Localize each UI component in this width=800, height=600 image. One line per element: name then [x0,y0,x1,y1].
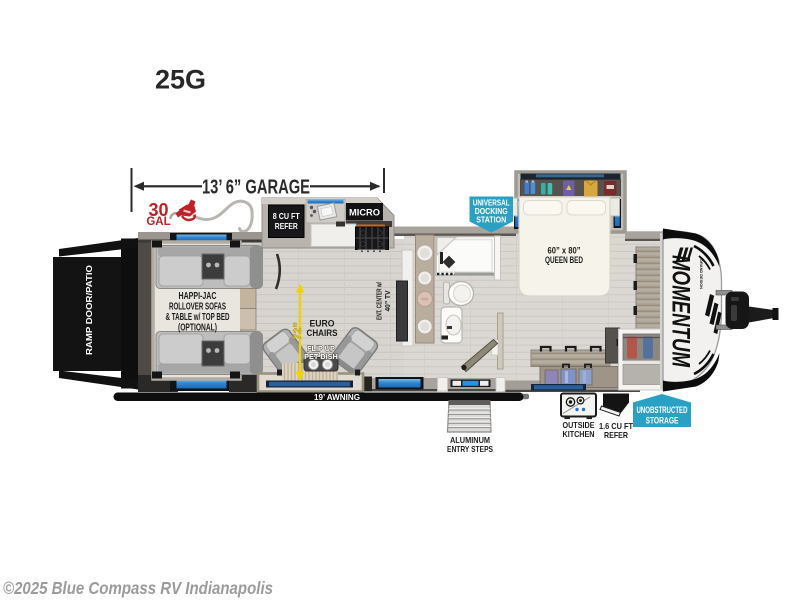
svg-text:25G: 25G [155,65,206,95]
svg-text:REFER: REFER [275,222,298,231]
svg-text:STATION: STATION [476,216,506,225]
svg-text:KITCHEN: KITCHEN [563,429,595,439]
svg-text:72”: 72” [292,322,304,340]
svg-text:©2025 Blue Compass RV Indianap: ©2025 Blue Compass RV Indianapolis [3,578,273,598]
svg-text:40” TV: 40” TV [383,290,392,311]
svg-text:MOMENTUM: MOMENTUM [667,255,695,368]
svg-text:PET DISH: PET DISH [304,352,338,361]
svg-text:RAMP DOOR/PATIO: RAMP DOOR/PATIO [84,264,94,355]
svg-text:GRAND DESIGN: GRAND DESIGN [699,259,704,289]
svg-text:(OPTIONAL): (OPTIONAL) [178,323,217,334]
svg-text:UNOBSTRUCTED: UNOBSTRUCTED [637,405,688,416]
svg-text:8 CU FT: 8 CU FT [273,212,300,221]
svg-text:QUEEN BED: QUEEN BED [545,255,583,265]
svg-text:MICRO: MICRO [349,208,380,218]
svg-text:13’ 6” GARAGE: 13’ 6” GARAGE [202,176,310,199]
svg-text:CHAIRS: CHAIRS [307,328,338,339]
svg-text:19’ AWNING: 19’ AWNING [314,393,360,402]
svg-text:STORAGE: STORAGE [646,416,679,427]
svg-text:REFER: REFER [604,430,628,440]
svg-text:HAPPI-JAC: HAPPI-JAC [179,291,217,302]
svg-text:ENTRY STEPS: ENTRY STEPS [447,444,493,454]
svg-text:60” x 80”: 60” x 80” [548,246,581,256]
svg-text:& TABLE w/ TOP BED: & TABLE w/ TOP BED [166,312,230,323]
svg-text:ROLLOVER SOFAS: ROLLOVER SOFAS [169,302,226,313]
svg-text:GAL: GAL [146,216,170,228]
